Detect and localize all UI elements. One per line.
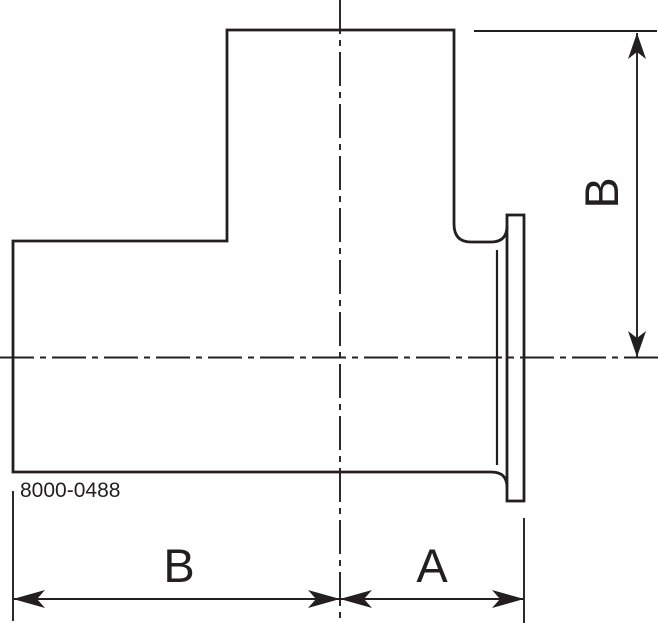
dim-label-b-horizontal: B	[163, 539, 194, 592]
drawing-canvas: B B A 8000-0488	[0, 0, 658, 623]
dim-label-b-vertical: B	[575, 177, 628, 208]
dimension-b-vertical: B	[474, 31, 657, 357]
technical-drawing: B B A 8000-0488	[0, 0, 658, 623]
fitting-body-outline	[13, 30, 507, 487]
dimension-a-horizontal: A	[340, 518, 524, 623]
part-number: 8000-0488	[20, 479, 120, 502]
dim-label-a-horizontal: A	[416, 539, 448, 592]
